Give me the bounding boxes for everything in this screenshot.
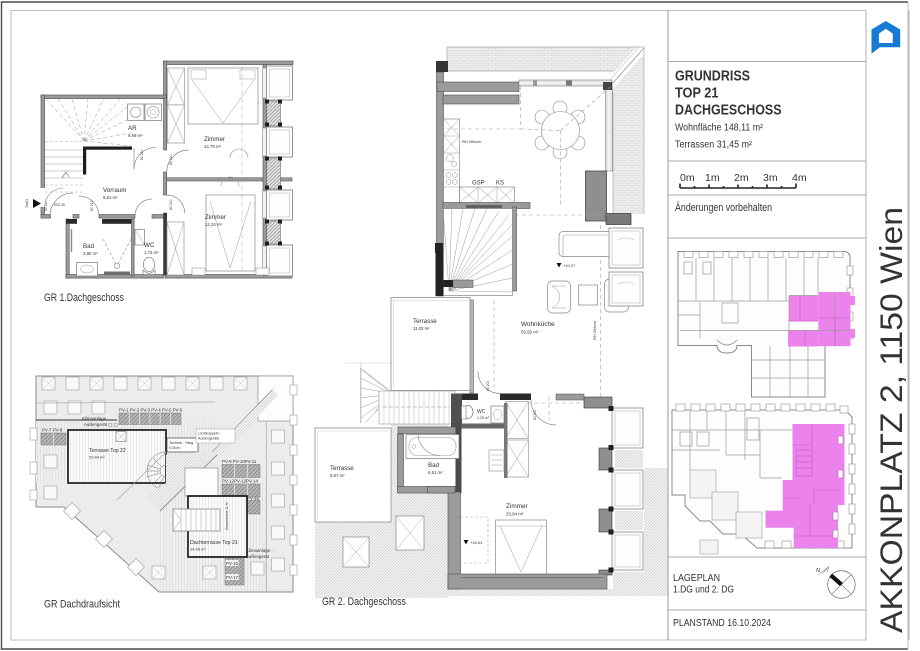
svg-text:PV-1 PV-2 PV-3 PV-4 PV-5 PV-6: PV-1 PV-2 PV-3 PV-4 PV-5 PV-6 [119, 408, 183, 413]
svg-text:KS: KS [496, 181, 504, 187]
svg-text:PV-9 PV-10PV-11: PV-9 PV-10PV-11 [222, 459, 257, 464]
svg-text:3m: 3m [763, 172, 778, 184]
svg-text:1.DG und 2. DG: 1.DG und 2. DG [673, 584, 734, 596]
svg-text:RH 266cm: RH 266cm [462, 139, 482, 144]
svg-text:59,56 m²: 59,56 m² [521, 330, 539, 335]
svg-text:Vorraum: Vorraum [103, 187, 126, 194]
svg-text:GSP: GSP [472, 181, 485, 187]
svg-text:5,67 m²: 5,67 m² [330, 473, 345, 478]
svg-text:80 200: 80 200 [486, 381, 490, 391]
svg-text:Top21: Top21 [25, 199, 29, 208]
svg-text:11,03 m²: 11,03 m² [413, 326, 430, 331]
svg-text:GR 2. Dachgeschoss: GR 2. Dachgeschoss [322, 596, 406, 608]
svg-text:Terrasse Top 22: Terrasse Top 22 [89, 448, 126, 454]
svg-text:80 210: 80 210 [90, 201, 94, 211]
svg-text:14,79 m²: 14,79 m² [204, 144, 222, 149]
svg-text:14,45 m²: 14,45 m² [190, 547, 206, 552]
svg-text:1m: 1m [705, 172, 720, 184]
svg-text:12,24 m²: 12,24 m² [205, 222, 223, 227]
svg-text:LAGEPLAN: LAGEPLAN [673, 572, 720, 584]
svg-text:E02.30: E02.30 [54, 203, 65, 207]
svg-text:Außengerät: Außengerät [246, 554, 270, 559]
svg-text:Terrasse: Terrasse [330, 465, 354, 472]
svg-text:Zimmer: Zimmer [506, 503, 529, 510]
svg-text:PV-16: PV-16 [226, 561, 239, 566]
svg-text:DACHGESCHOSS: DACHGESCHOSS [675, 103, 782, 119]
svg-text:0m: 0m [680, 172, 695, 184]
svg-text:AR: AR [128, 125, 137, 132]
svg-text:AKKONPLATZ 2, 1150 Wien: AKKONPLATZ 2, 1150 Wien [873, 207, 909, 633]
svg-text:Technik - Steg: Technik - Steg [169, 441, 193, 445]
svg-text:GRUNDRISS: GRUNDRISS [675, 69, 750, 85]
svg-text:Dachterrasse Top 21: Dachterrasse Top 21 [190, 540, 238, 546]
svg-text:1,25 m²: 1,25 m² [477, 416, 490, 420]
svg-text:Terrassen 31,45 m²: Terrassen 31,45 m² [675, 140, 753, 151]
svg-text:Zimmer: Zimmer [205, 214, 226, 221]
svg-text:WC: WC [477, 409, 486, 415]
svg-text:RH 266cm: RH 266cm [592, 320, 597, 340]
svg-text:N: N [816, 568, 820, 574]
svg-text:Bad: Bad [428, 462, 440, 469]
svg-text:6,69 m²: 6,69 m² [128, 133, 143, 138]
svg-text:4m: 4m [792, 172, 807, 184]
svg-text:Klimaanlage -: Klimaanlage - [246, 548, 273, 553]
svg-text:Außengerät ▢ ▢: Außengerät ▢ ▢ [84, 422, 118, 427]
svg-text:Gesamthöhe 11 %: Gesamthöhe 11 % [225, 502, 229, 530]
svg-text:5,06 m²: 5,06 m² [169, 446, 181, 450]
svg-text:Änderungen vorbehalten: Änderungen vorbehalten [675, 202, 772, 214]
svg-text:GR 1.Dachgeschoss: GR 1.Dachgeschoss [44, 292, 124, 304]
svg-text:2m: 2m [734, 172, 749, 184]
svg-text:+16,63: +16,63 [470, 540, 483, 545]
svg-text:Bad: Bad [83, 243, 95, 250]
svg-text:33,94 m²: 33,94 m² [506, 512, 524, 517]
svg-text:PV-17: PV-17 [226, 575, 239, 580]
svg-text:Klimaanlage: Klimaanlage [82, 416, 107, 421]
svg-text:Wohnfläche 148,11 m²: Wohnfläche 148,11 m² [675, 123, 764, 134]
svg-text:WC: WC [144, 242, 155, 249]
svg-text:9,51 m²: 9,51 m² [103, 195, 118, 200]
svg-text:80 210: 80 210 [169, 200, 173, 210]
svg-text:6,51 m²: 6,51 m² [428, 470, 443, 475]
svg-text:Lichtkuppeln -: Lichtkuppeln - [198, 432, 222, 436]
svg-text:Außengeräte: Außengeräte [198, 437, 219, 441]
svg-text:80 210: 80 210 [140, 150, 144, 160]
svg-text:Zimmer: Zimmer [204, 136, 225, 143]
svg-text:PV-7 PV-8: PV-7 PV-8 [42, 428, 63, 433]
svg-text:80 210: 80 210 [169, 155, 173, 165]
svg-text:Terrasse: Terrasse [413, 318, 437, 325]
svg-text:20,44 m²: 20,44 m² [89, 455, 105, 460]
svg-text:PV-12PV-13PV-14: PV-12PV-13PV-14 [222, 479, 258, 484]
svg-text:GR Dachdraufsicht: GR Dachdraufsicht [44, 599, 120, 611]
svg-text:3,80 m²: 3,80 m² [83, 251, 98, 256]
svg-text:80 200: 80 200 [533, 410, 537, 420]
svg-text:PLANSTAND 16.10.2024: PLANSTAND 16.10.2024 [673, 617, 771, 629]
svg-text:1,72 m²: 1,72 m² [144, 250, 159, 255]
svg-text:+10,97: +10,97 [563, 263, 576, 268]
svg-text:Wohnküche: Wohnküche [521, 321, 555, 328]
svg-text:TOP 21: TOP 21 [675, 86, 719, 102]
